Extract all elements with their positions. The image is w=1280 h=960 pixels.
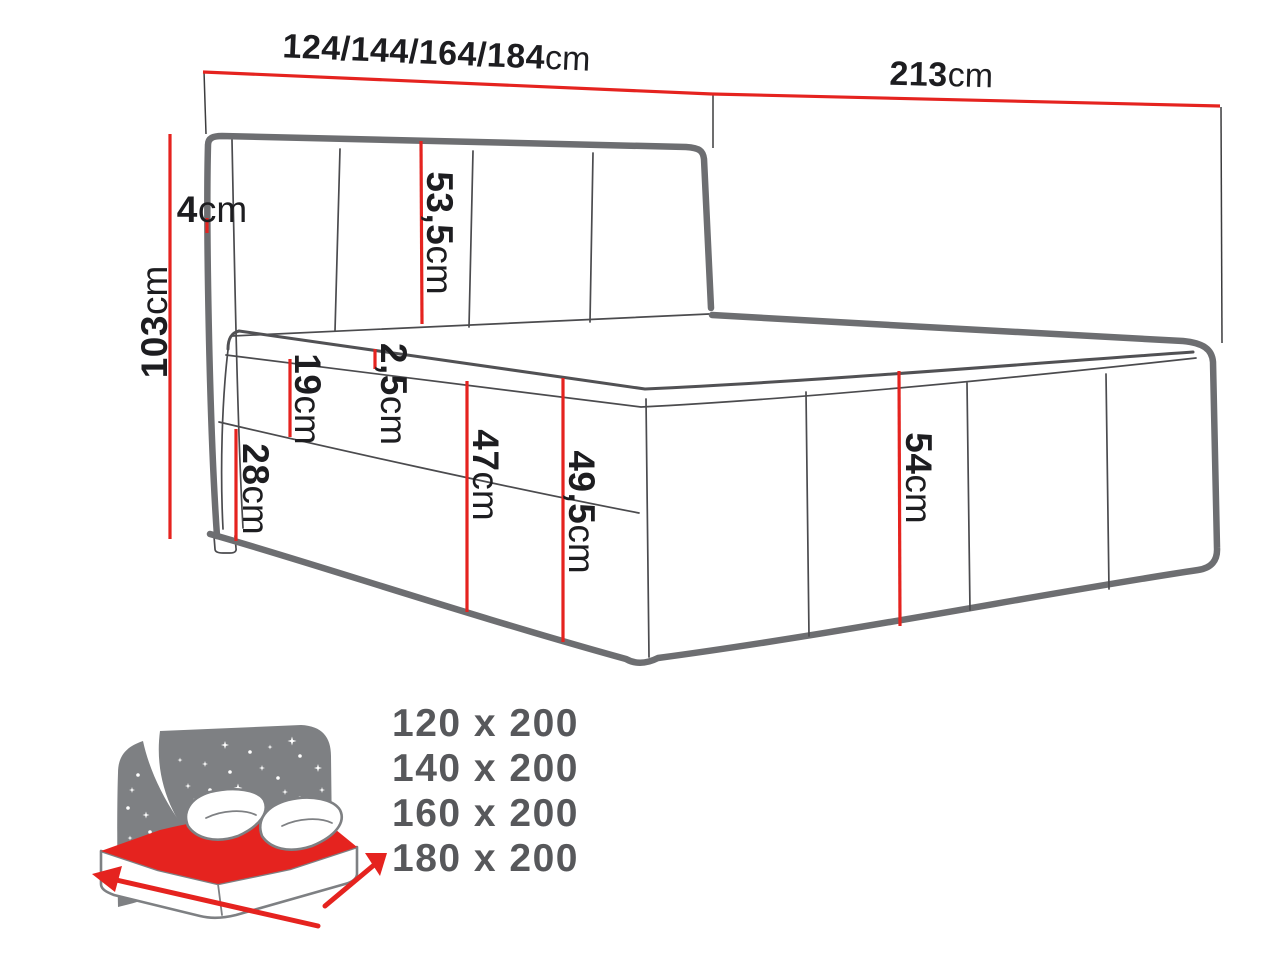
star-dot-icon <box>298 754 302 758</box>
headboard-seam-1 <box>335 149 340 331</box>
height-front-unit: cm <box>465 471 506 520</box>
dim-line-length <box>712 94 1220 106</box>
label-headboard-edge: 4cm <box>177 189 247 230</box>
label-base-side: 28cm <box>235 443 276 534</box>
base-side-unit: cm <box>235 485 276 534</box>
base-seam-3 <box>1106 374 1109 589</box>
star-dot-icon <box>276 776 280 780</box>
mattress-side-unit: cm <box>287 395 328 444</box>
label-length: 213cm <box>889 55 993 96</box>
topper-edge-value: 2,5 <box>373 343 414 396</box>
topper-top-edge <box>228 331 1193 389</box>
height-front-value: 47 <box>465 429 506 471</box>
base-side-value: 28 <box>235 443 276 485</box>
label-headboard-panel: 53,5cm <box>419 171 460 294</box>
label-side-height: 54cm <box>898 432 939 523</box>
mattress-side-value: 19 <box>287 353 328 395</box>
height-with-topper-unit: cm <box>561 524 602 573</box>
dimension-labels: 124/144/164/184cm 213cm 103cm 4cm 53,5cm… <box>134 27 993 573</box>
headboard-panel-unit: cm <box>419 245 460 294</box>
width-options-value: 124/144/164/184 <box>282 27 546 76</box>
length-value: 213 <box>889 55 948 94</box>
length-unit: cm <box>947 56 993 95</box>
total-height-value: 103 <box>134 315 175 378</box>
label-height-front: 47cm <box>465 429 506 520</box>
headboard-edge-unit: cm <box>198 189 247 230</box>
size-list: 120 x 200 140 x 200 160 x 200 180 x 200 <box>392 702 579 880</box>
label-height-with-topper: 49,5cm <box>561 450 602 573</box>
mattress-back-line <box>232 314 709 336</box>
front-face-left-edge <box>222 350 228 529</box>
height-with-topper-value: 49,5 <box>561 450 602 524</box>
size-option-1: 120 x 200 <box>392 702 579 745</box>
label-mattress-side: 19cm <box>287 353 328 444</box>
size-option-3: 160 x 200 <box>392 792 579 835</box>
ext-width-left <box>204 71 206 134</box>
label-topper-edge: 2,5cm <box>373 343 414 445</box>
base-seam-2 <box>967 383 970 610</box>
side-height-value: 54 <box>898 432 939 474</box>
headboard-edge-value: 4 <box>177 189 198 230</box>
star-dot-icon <box>228 770 232 774</box>
size-option-4: 180 x 200 <box>392 837 579 880</box>
base-seam-1 <box>806 392 809 636</box>
dim-line-width <box>203 72 712 94</box>
total-height-unit: cm <box>134 266 175 315</box>
bed-with-starry-headboard-icon <box>92 725 387 926</box>
label-total-height: 103cm <box>134 266 175 379</box>
size-option-2: 140 x 200 <box>392 747 579 790</box>
headboard-seam-2 <box>469 151 473 327</box>
star-dot-icon <box>126 806 130 810</box>
star-dot-icon <box>136 773 140 777</box>
bed-diagram-svg: 124/144/164/184cm 213cm 103cm 4cm 53,5cm… <box>0 0 1280 960</box>
headboard-seam-3 <box>590 153 593 322</box>
base-corner-seam <box>646 399 649 657</box>
ext-length-right <box>1221 107 1222 343</box>
topper-edge-unit: cm <box>373 396 414 445</box>
bed-dimensions-diagram: 124/144/164/184cm 213cm 103cm 4cm 53,5cm… <box>0 0 1280 960</box>
star-dot-icon <box>248 750 252 754</box>
headboard-panel-value: 53,5 <box>419 171 460 245</box>
width-options-unit: cm <box>544 39 591 79</box>
side-height-unit: cm <box>898 474 939 523</box>
bed-outer-edge <box>210 315 1217 663</box>
bed-line-art <box>207 136 1217 663</box>
label-width-options: 124/144/164/184cm <box>282 27 591 78</box>
